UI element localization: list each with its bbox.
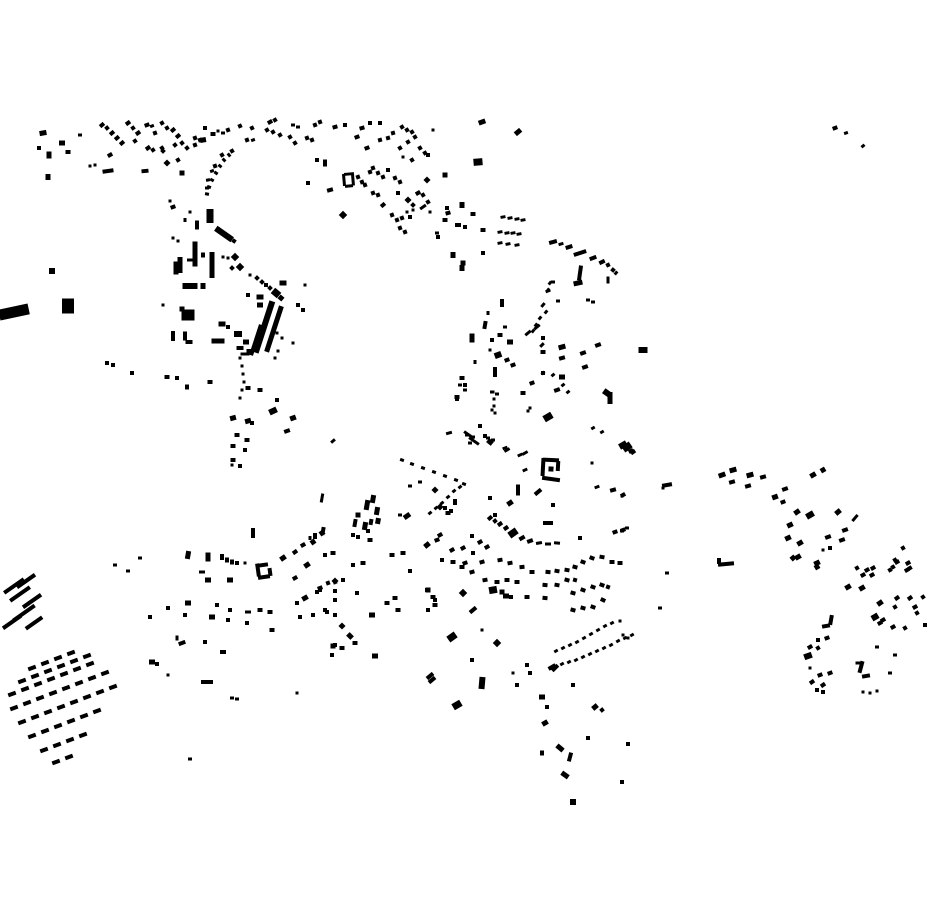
building-footprint [479,559,485,564]
building-footprint [65,754,74,760]
building-footprint [386,168,390,172]
building-footprint [396,191,400,195]
building-footprint [419,204,426,210]
building-footprint [163,159,170,166]
building-footprint [497,241,502,245]
building-footprint [180,171,185,176]
building-footprint [510,362,516,367]
building-footprint [375,170,380,175]
building-footprint [862,673,871,678]
building-footprint [526,538,533,544]
building-footprint [460,265,465,271]
building-footprint [492,518,498,524]
building-footprint [62,299,74,314]
building-footprint [491,409,494,412]
building-footprint [548,466,553,471]
building-footprint [417,145,422,150]
building-footprint [920,594,926,600]
building-footprint [594,485,600,490]
building-footprint [249,274,252,277]
building-footprint [828,546,832,550]
building-footprint [538,316,543,321]
building-footprint [125,120,131,126]
building-footprint [70,658,79,664]
building-footprint [446,495,451,500]
building-footprint [159,120,164,125]
building-footprint [481,629,484,632]
building-footprint [206,178,210,182]
building-footprint [524,330,531,337]
building-footprint [838,537,845,543]
building-footprint [567,752,573,762]
building-footprint [729,479,736,484]
building-footprint [251,138,256,142]
building-footprint [396,608,401,612]
building-footprint [599,707,605,713]
building-footprint [126,570,130,573]
building-footprint [443,218,448,222]
building-footprint [303,561,311,569]
building-footprint [229,265,235,271]
building-footprint [238,464,242,468]
building-footprint [539,342,545,348]
building-footprint [341,578,345,582]
building-footprint [258,388,263,392]
building-footprint [378,121,382,125]
building-footprint [94,164,97,167]
building-footprint [510,231,515,235]
building-footprint [245,621,249,625]
building-footprint [206,553,211,562]
building-footprint [171,331,175,341]
building-footprint [217,130,220,133]
building-footprint [53,742,62,748]
building-footprint [445,206,449,210]
building-footprint [235,698,239,701]
building-footprint [296,303,300,307]
building-footprint [426,588,431,593]
building-footprint [165,375,170,379]
building-footprint [247,349,254,353]
building-footprint [394,217,399,222]
building-footprint [902,625,907,630]
building-footprint [236,263,244,271]
building-footprint [470,658,474,662]
building-footprint [109,130,115,136]
building-footprint [905,560,911,566]
building-footprint [44,709,53,715]
building-footprint [591,301,595,304]
building-footprint [219,322,226,327]
building-footprint [399,124,404,129]
building-footprint [185,551,191,560]
building-footprint [180,307,185,312]
building-footprint [192,135,197,140]
building-footprint [460,376,465,380]
building-footprint [530,570,535,574]
building-footprint [145,145,151,151]
building-footprint [822,623,831,628]
building-footprint [519,565,524,569]
building-footprint [257,303,263,308]
building-footprint [525,595,530,599]
building-footprint [556,461,561,471]
building-footprint [306,181,310,185]
building-footprint [113,564,117,567]
building-footprint [506,499,514,507]
building-footprint [330,653,334,657]
building-footprint [580,559,586,564]
building-footprint [83,694,92,700]
building-footprint [410,462,415,466]
building-footprint [237,346,244,350]
building-footprint [482,578,488,583]
building-footprint [561,646,566,651]
building-footprint [267,285,273,291]
building-footprint [364,500,371,511]
building-footprint [309,137,314,142]
building-footprint [241,365,244,368]
building-footprint [210,252,215,278]
building-footprint [468,442,472,445]
building-footprint [54,723,63,729]
building-footprint [573,280,583,287]
building-footprint [23,700,32,706]
building-footprint [185,385,189,390]
building-footprint [509,595,513,599]
building-footprint [588,652,593,657]
building-footprint [824,635,830,640]
building-footprint [352,519,357,528]
building-footprint [39,130,47,136]
building-footprint [578,536,582,540]
building-footprint [529,380,535,385]
building-footprint [218,164,223,169]
building-footprint [162,304,165,307]
building-footprint [83,653,92,659]
building-footprint [333,643,337,647]
building-footprint [241,389,244,392]
building-footprint [220,650,226,654]
building-footprint [107,152,113,158]
building-footprint [212,163,217,168]
building-footprint [423,176,430,183]
building-footprint [270,628,275,632]
building-footprint [529,407,532,410]
building-footprint [503,326,507,329]
building-footprint [200,137,207,143]
building-footprint [493,398,496,401]
building-footprint [729,467,737,474]
building-footprint [590,604,596,609]
building-footprint [243,381,246,384]
building-footprint [543,521,553,525]
building-footprint [495,393,499,396]
building-footprint [222,256,225,259]
building-footprint [518,535,525,541]
building-footprint [343,123,347,127]
building-footprint [354,134,360,139]
building-footprint [214,226,234,242]
building-footprint [270,129,275,134]
building-footprint [500,215,505,219]
building-footprint [598,259,605,265]
building-footprint [815,688,819,692]
building-footprint [292,549,298,555]
building-footprint [245,438,250,442]
building-footprint [586,299,590,302]
building-footprint [440,558,444,562]
building-footprint [432,129,435,132]
building-footprint [179,140,185,146]
building-footprint [443,506,447,510]
building-footprint [193,242,198,267]
building-footprint [514,128,523,136]
building-footprint [183,332,187,341]
building-footprint [549,239,558,245]
building-footprint [73,666,82,672]
building-footprint [421,466,426,470]
building-footprint [892,604,897,609]
building-footprint [169,200,172,203]
building-footprint [176,636,179,641]
building-footprint [493,639,501,647]
building-footprint [745,483,752,488]
building-footprint [309,536,312,540]
building-footprint [398,514,402,517]
building-footprint [516,485,520,496]
building-footprint [364,145,370,150]
building-footprint [36,695,45,701]
building-footprint [144,122,150,127]
building-footprint [420,192,425,197]
building-footprint [412,209,415,212]
building-footprint [378,138,383,143]
building-footprint [608,392,613,404]
building-footprint [478,424,482,428]
building-footprint [57,663,66,669]
building-footprint [229,415,236,421]
building-footprint [226,618,230,622]
building-footprint [558,242,564,246]
building-footprint [591,426,596,431]
building-footprint [498,333,503,337]
building-footprint [590,584,596,589]
building-footprint [574,658,579,663]
building-footprint [205,192,209,196]
building-footprint [492,391,495,394]
building-footprint [330,438,336,444]
building-footprint [564,577,570,582]
building-footprint [368,538,373,542]
building-footprint [40,747,49,753]
building-footprint [864,567,870,573]
building-footprint [166,606,170,610]
building-footprint [114,135,120,141]
building-footprint [245,611,251,614]
building-footprint [437,532,443,538]
building-footprint [504,231,509,235]
building-footprint [627,637,630,640]
building-footprint [570,799,576,805]
building-footprint [21,686,30,692]
building-footprint [391,131,396,136]
building-footprint [443,474,448,478]
building-footprint [237,123,242,128]
building-footprint [658,607,662,610]
building-footprint [522,468,528,473]
building-footprint [489,349,492,352]
building-footprint [717,558,721,564]
building-footprint [235,433,240,437]
building-footprint [471,551,475,555]
building-footprint [209,615,215,620]
building-footprint [458,384,462,387]
building-footprint [803,652,813,660]
building-footprint [280,281,287,286]
building-footprint [596,628,601,633]
building-footprint [264,283,268,287]
building-footprint [545,705,549,709]
building-footprint [369,613,375,618]
building-footprint [542,476,560,482]
building-footprint [220,554,224,560]
building-footprint [101,670,110,676]
building-footprint [497,558,503,563]
building-footprint [900,545,905,550]
building-footprint [491,439,495,442]
building-footprint [405,139,410,144]
building-footprint [431,486,438,493]
building-footprint [869,692,872,695]
building-footprint [351,533,355,537]
building-footprint [231,464,234,467]
building-footprint [177,240,180,243]
building-footprint [564,568,570,573]
building-footprint [554,649,559,654]
building-footprint [353,641,358,645]
building-footprint [429,211,432,214]
building-footprints-layer [0,0,930,924]
building-footprint [470,334,475,343]
building-footprint [907,595,913,601]
building-footprint [477,539,483,545]
building-footprint [567,660,572,665]
building-footprint [581,364,588,370]
building-footprint [41,660,50,666]
building-footprint [25,616,44,631]
building-footprint [339,211,347,219]
building-footprint [390,553,395,557]
building-footprint [374,507,380,516]
building-footprint [195,221,199,230]
building-footprint [443,173,448,178]
building-footprint [80,713,89,719]
building-footprint [495,580,500,584]
building-footprint [10,705,19,711]
building-footprint [507,216,512,220]
building-footprint [539,695,545,700]
building-footprint [359,125,365,130]
building-footprint [210,169,215,173]
building-footprint [453,499,457,505]
building-footprint [451,252,456,258]
building-footprint [333,589,337,593]
building-footprint [272,117,277,122]
building-footprint [618,561,623,565]
building-footprint [295,601,299,605]
building-footprint [31,714,40,720]
building-footprint [568,643,573,648]
building-footprint [392,175,397,180]
building-footprint [135,130,141,136]
building-footprint [404,127,409,132]
building-footprint [451,560,456,564]
building-footprint [275,398,279,402]
building-footprint [861,144,866,149]
building-footprint [415,190,421,196]
building-footprint [609,643,614,648]
building-footprint [591,462,594,465]
building-footprint [192,142,197,147]
building-footprint [178,640,186,646]
building-footprint [268,407,278,416]
building-footprint [481,228,486,232]
building-footprint [89,165,92,168]
building-footprint [542,583,547,587]
building-footprint [351,563,355,567]
building-footprint [28,665,37,671]
building-footprint [551,373,556,378]
building-footprint [602,646,607,651]
building-footprint [184,218,187,222]
building-footprint [333,598,337,602]
building-footprint [332,124,338,129]
building-footprint [809,471,817,478]
building-footprint [869,572,875,578]
building-footprint [423,541,431,549]
building-footprint [183,613,187,617]
building-footprint [594,342,601,348]
building-footprint [235,561,239,565]
building-footprint [459,589,467,597]
building-footprint [369,519,374,526]
building-footprint [227,578,233,583]
building-footprint [493,513,497,517]
building-footprint [545,570,550,574]
building-footprint [254,275,260,281]
building-footprint [497,230,502,234]
building-footprint [610,560,615,564]
building-footprint [605,262,610,267]
building-footprint [541,350,546,354]
building-footprint [553,387,560,393]
building-footprint [607,277,610,284]
map-canvas [0,0,930,924]
building-footprint [478,118,486,125]
building-footprint [556,300,560,303]
building-footprint [155,662,159,666]
building-footprint [570,607,576,612]
building-footprint [824,534,831,540]
building-footprint [277,132,282,137]
building-footprint [500,299,504,307]
building-footprint [281,337,284,340]
building-footprint [227,257,230,260]
building-footprint [380,202,386,208]
building-footprint [591,703,599,711]
building-footprint [503,525,509,531]
